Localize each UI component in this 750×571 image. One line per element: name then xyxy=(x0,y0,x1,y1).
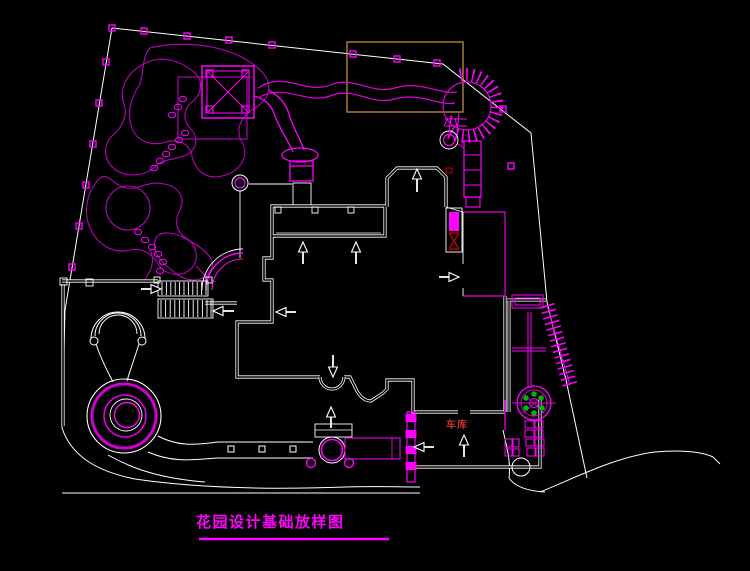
patio-table-structure xyxy=(307,424,401,468)
arrow-up-icon xyxy=(460,435,469,457)
arrow-right-icon xyxy=(439,273,459,282)
selection-highlight-box xyxy=(347,42,463,112)
trellis-grid xyxy=(512,295,546,388)
arrow-left-icon xyxy=(414,443,434,452)
stream xyxy=(258,81,457,103)
arrow-left-icon xyxy=(213,307,234,316)
arrow-up-icon xyxy=(352,242,361,264)
garden-path-band xyxy=(148,436,313,460)
tree-planter xyxy=(512,386,556,420)
espalier-arc xyxy=(443,74,497,136)
arrow-down-icon xyxy=(329,355,338,377)
hedge-ticks xyxy=(547,305,570,385)
arrow-left-icon xyxy=(276,308,296,317)
arrow-up-icon xyxy=(299,242,308,264)
stepping-stones xyxy=(134,96,188,274)
east-path xyxy=(507,300,546,412)
arrow-up-icon xyxy=(327,407,336,428)
entry-arrows xyxy=(141,169,469,457)
utility-column xyxy=(446,168,462,252)
garage-label: 车库 xyxy=(446,418,468,431)
tree-symbol-small xyxy=(232,175,292,258)
drawing-title: 花园设计基础放样图 xyxy=(196,513,345,531)
terrace-connector xyxy=(293,183,311,206)
staircase xyxy=(60,277,213,318)
cad-canvas[interactable]: 车库 花园设计基础放样图 xyxy=(0,0,750,571)
fountain xyxy=(87,379,161,453)
pavilion-path xyxy=(254,90,318,181)
garden-plan-drawing: 车库 花园设计基础放样图 xyxy=(0,0,750,571)
arrow-up-icon xyxy=(413,169,422,192)
title-block: 花园设计基础放样图 xyxy=(196,513,389,539)
roof-tabs xyxy=(275,207,354,213)
arch-bridge xyxy=(90,312,146,382)
